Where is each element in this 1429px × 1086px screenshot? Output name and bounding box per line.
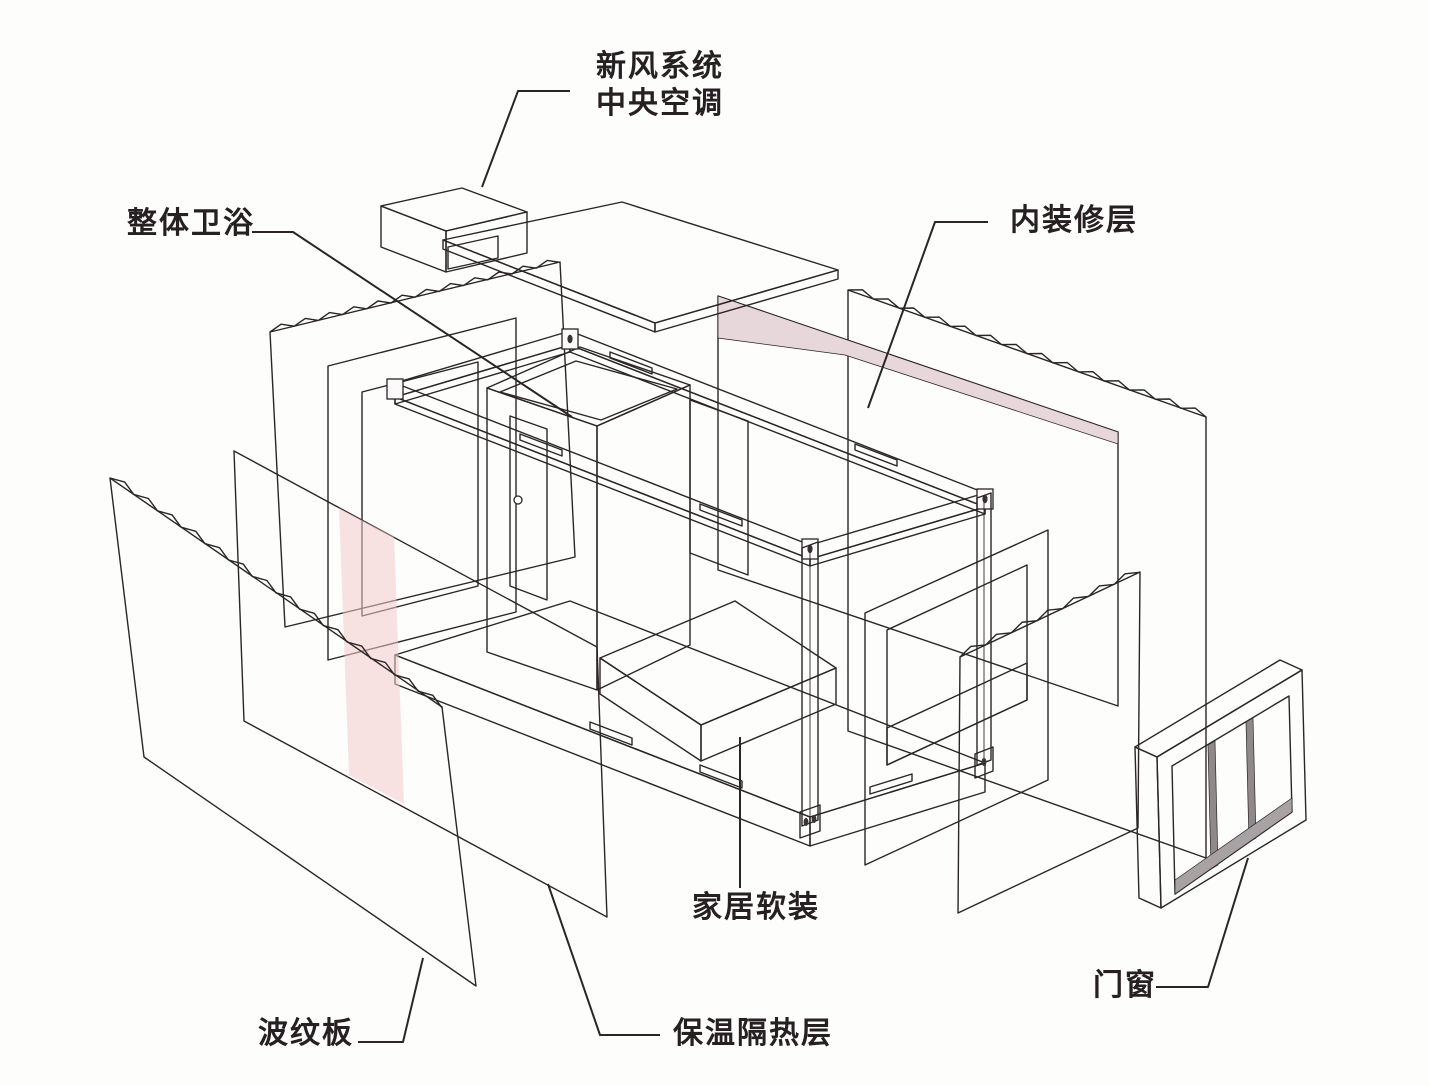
- label-corrugated-panel: 波纹板: [258, 1016, 354, 1051]
- insulation-pink-stripe: [339, 508, 404, 804]
- interior-pink-partition: [690, 400, 748, 575]
- label-thermal-insulation-layer: 保温隔热层: [673, 1016, 833, 1051]
- label-integrated-bathroom: 整体卫浴: [127, 206, 255, 241]
- door-knob: [514, 496, 522, 504]
- diagram-canvas: 新风系统 中央空调 整体卫浴 内装修层 家居软装 保温隔热层 波纹板 门窗: [0, 0, 1429, 1086]
- window-unit: [1135, 660, 1306, 908]
- end-wall-window-panel: [865, 530, 1048, 865]
- window-track: [1175, 798, 1292, 894]
- insulation-panel: [234, 451, 607, 917]
- mattress: [600, 601, 836, 761]
- window-mullion: [1246, 718, 1256, 842]
- label-hvac-line2: 中央空调: [596, 86, 724, 121]
- label-doors-windows: 门窗: [1093, 968, 1157, 1003]
- label-home-soft-furnishing: 家居软装: [692, 890, 820, 925]
- label-hvac-line1: 新风系统: [596, 49, 724, 84]
- corrugated-panel-front-right: [958, 572, 1140, 913]
- leader-insulation: [548, 884, 660, 1035]
- window-mullion: [1208, 741, 1218, 869]
- leader-corrugated: [358, 958, 423, 1042]
- roof-panel: [443, 202, 838, 332]
- leader-hvac: [482, 91, 570, 187]
- corrugated-panel-front-left: [110, 478, 476, 986]
- leader-doors-windows: [1156, 858, 1248, 987]
- label-interior-finish-layer: 内装修层: [1010, 203, 1138, 238]
- hvac-unit: [381, 188, 527, 272]
- exploded-container-house-diagram: 新风系统 中央空调 整体卫浴 内装修层 家居软装 保温隔热层 波纹板 门窗: [0, 0, 1429, 1086]
- integrated-bathroom-pod: [487, 347, 690, 690]
- interior-finish-wall: [718, 296, 1118, 706]
